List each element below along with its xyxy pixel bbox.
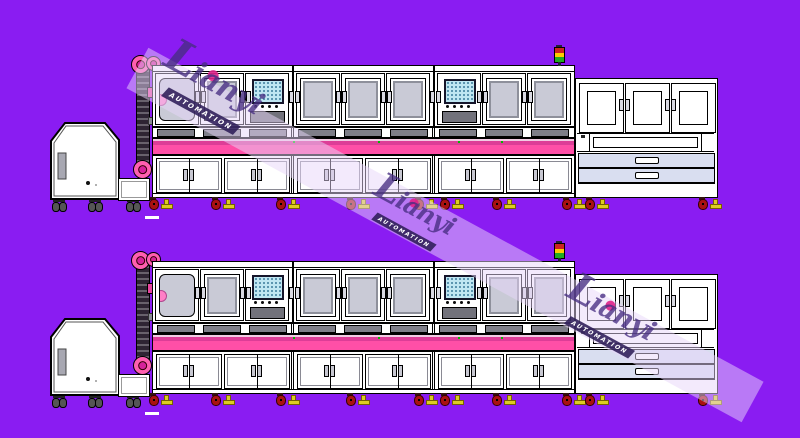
door-handle [430, 91, 440, 103]
hopper-caster [88, 396, 104, 407]
table-slot [593, 137, 698, 148]
base-line [578, 183, 715, 184]
caster-foot [414, 393, 436, 406]
cabinet-handle [251, 169, 261, 180]
keyboard-tray [250, 307, 285, 319]
caster-foot [698, 197, 720, 210]
caster-foot [440, 393, 462, 406]
door-panel [482, 73, 526, 125]
tower-lights-icon [554, 47, 565, 63]
caster-foot [562, 197, 584, 210]
vent-slot [531, 325, 569, 333]
vent-slot [203, 325, 241, 333]
door-handle [195, 287, 205, 299]
end-station [575, 78, 718, 198]
door-handle [240, 287, 250, 299]
process-module-2 [293, 65, 434, 127]
scale-dash [145, 216, 159, 219]
hopper-caster [52, 200, 68, 211]
caster-foot [492, 393, 514, 406]
button-row [446, 301, 474, 305]
cabinet-handle [183, 169, 193, 180]
caster-foot [276, 393, 298, 406]
door-handle [522, 91, 532, 103]
conveyor-belt [152, 334, 575, 351]
feeder-hopper-machine [50, 318, 120, 398]
caster-foot [492, 197, 514, 210]
sensor-dot-icon [378, 141, 380, 143]
outfeed-table [118, 178, 150, 201]
feeder-hopper-machine [50, 122, 120, 202]
vent-slot [344, 325, 382, 333]
door-panel [386, 269, 430, 321]
process-module-2 [293, 261, 434, 323]
door-panel [200, 269, 244, 321]
worktable-band [577, 133, 714, 152]
vent-slot [249, 325, 287, 333]
caster-foot [585, 197, 607, 210]
door-handle [289, 287, 299, 299]
hopper-caster [52, 396, 68, 407]
hopper-caster [88, 200, 104, 211]
control-panel [245, 269, 289, 321]
cabinet-base-rail [153, 389, 574, 390]
caster-foot [149, 197, 171, 210]
caster-foot [149, 393, 171, 406]
end-window [679, 287, 708, 321]
drawer-handle [635, 172, 659, 179]
drawer-lower [578, 168, 715, 183]
end-door-panel [579, 83, 624, 133]
vent-slot [485, 129, 523, 137]
table-divider [701, 134, 702, 151]
table-caster [126, 396, 142, 407]
tower-lights-icon [554, 243, 565, 259]
module-top-rail [294, 262, 433, 268]
tower-pole [558, 258, 561, 262]
sprocket-bottom-icon [133, 356, 152, 375]
vent-slot [344, 129, 382, 137]
door-handle [381, 91, 391, 103]
module-divider [432, 156, 435, 193]
door-panel [296, 269, 340, 321]
door-handle [619, 99, 629, 111]
drawer-upper [578, 153, 715, 168]
caster-foot [585, 393, 607, 406]
caster-foot [276, 197, 298, 210]
door-handle [665, 99, 675, 111]
sensor-dot-icon [458, 337, 460, 339]
cabinet-handle [392, 365, 402, 376]
keyboard-tray [442, 307, 477, 319]
module-top-rail [435, 66, 574, 72]
door-panel [386, 73, 430, 125]
door-panel [155, 269, 199, 321]
cabinet-handle [533, 365, 543, 376]
signal-tower [554, 45, 565, 66]
module-top-rail [153, 262, 292, 268]
vent-slot [485, 325, 523, 333]
door-handle [477, 91, 487, 103]
window [345, 274, 381, 317]
sprocket-bottom-icon [133, 160, 152, 179]
vent-slot [390, 129, 428, 137]
module-divider [291, 324, 294, 333]
outfeed-table [118, 374, 150, 397]
window-rounded [159, 274, 195, 317]
process-module-1 [152, 261, 293, 323]
vent-slot [390, 325, 428, 333]
hopper-slot [58, 349, 66, 375]
door-handle [336, 91, 346, 103]
caster-foot [211, 197, 233, 210]
sensor-dot-icon [458, 141, 460, 143]
window [531, 78, 567, 121]
hmi-screen [444, 79, 476, 104]
door-handle [430, 287, 440, 299]
cabinet-handle [251, 365, 261, 376]
module-divider [432, 128, 435, 137]
vent-row [152, 323, 575, 334]
end-window [633, 91, 662, 125]
hmi-screen [252, 275, 284, 300]
door-panel [527, 73, 571, 125]
module-divider [432, 352, 435, 389]
cabinet-handle [324, 365, 334, 376]
signal-tower [554, 241, 565, 262]
table-caster [126, 200, 142, 211]
vent-slot [157, 325, 195, 333]
door-handle [665, 295, 675, 307]
end-door-panel [625, 83, 670, 133]
caster-foot [346, 393, 368, 406]
table-divider [589, 134, 590, 151]
vent-slot [298, 325, 336, 333]
tower-pole [558, 62, 561, 66]
keyboard-tray [442, 111, 477, 123]
drawer-handle [635, 157, 659, 164]
caster-foot [211, 393, 233, 406]
cabinet-handle [465, 169, 475, 180]
window [204, 274, 240, 317]
conveyor-belt [152, 138, 575, 155]
hopper-slot [58, 153, 66, 179]
door-handle [336, 287, 346, 299]
end-window [587, 91, 616, 125]
window [390, 78, 426, 121]
vent-slot [157, 129, 195, 137]
button-row [446, 105, 474, 109]
module-divider [432, 324, 435, 333]
end-window [679, 91, 708, 125]
door-panel [341, 269, 385, 321]
hmi-screen [444, 275, 476, 300]
latch-mark [581, 135, 585, 138]
window [390, 274, 426, 317]
cabinet-handle [183, 365, 193, 376]
door-handle [381, 287, 391, 299]
caster-foot [562, 393, 584, 406]
cabinet-handle [533, 169, 543, 180]
sensor-dot-icon [501, 337, 503, 339]
module-divider [291, 352, 294, 389]
process-module-3 [434, 65, 575, 127]
sensor-dot-icon [501, 141, 503, 143]
port-hole-icon [159, 290, 167, 302]
end-door-panel [671, 83, 716, 133]
scale-dash [145, 412, 159, 415]
cabinet-row [152, 351, 575, 394]
button-row [254, 301, 282, 305]
window [486, 78, 522, 121]
vent-slot [439, 325, 477, 333]
vent-slot [531, 129, 569, 137]
control-panel [437, 73, 481, 125]
module-top-rail [294, 66, 433, 72]
window [300, 274, 336, 317]
window [345, 78, 381, 121]
door-handle [477, 287, 487, 299]
vent-slot [439, 129, 477, 137]
cabinet-handle [465, 365, 475, 376]
canvas: { "title": "Lianyi automation assembly l… [0, 0, 800, 438]
sensor-dot-icon [378, 337, 380, 339]
sensor-dot-icon [293, 337, 295, 339]
door-panel [341, 73, 385, 125]
